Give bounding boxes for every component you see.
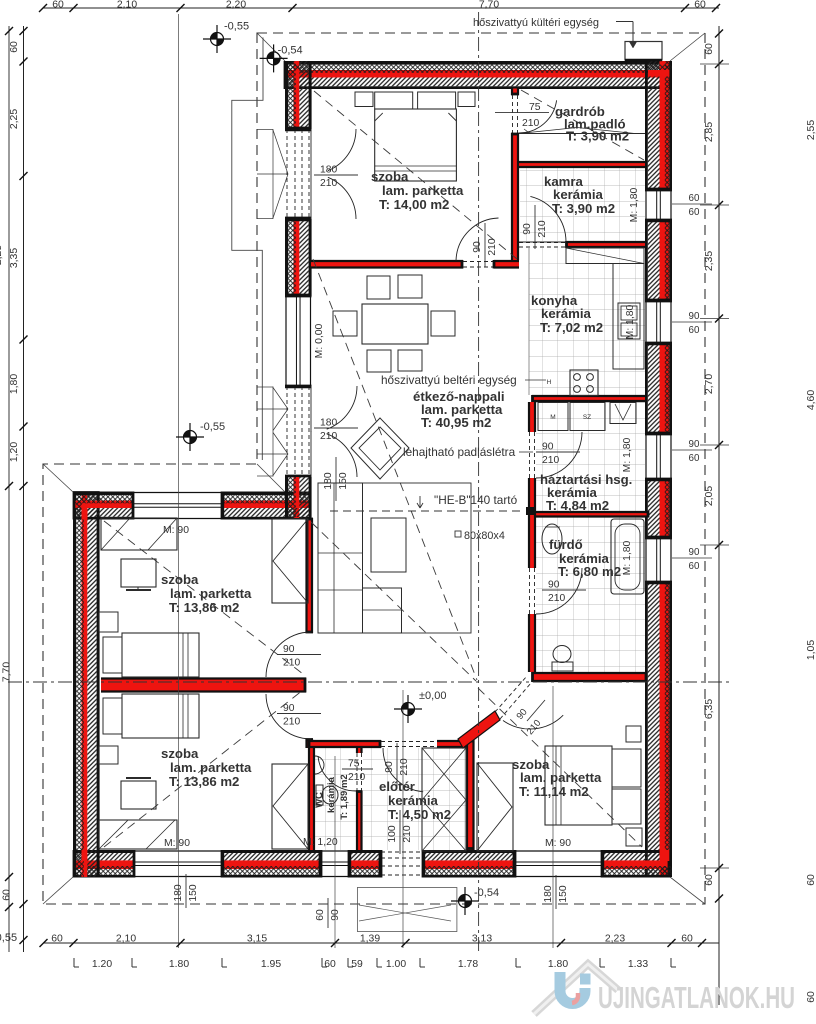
svg-text:210: 210 — [487, 238, 498, 255]
svg-text:kerámia: kerámia — [553, 187, 604, 202]
svg-text:-0,55: -0,55 — [200, 421, 225, 433]
svg-text:1,80: 1,80 — [9, 374, 20, 394]
svg-text:szoba: szoba — [161, 572, 199, 587]
svg-text:fürdő: fürdő — [549, 537, 583, 552]
svg-text:-0,54: -0,54 — [474, 887, 499, 899]
svg-text:lam. parketta: lam. parketta — [382, 183, 464, 198]
svg-text:210: 210 — [283, 717, 300, 728]
svg-text:180: 180 — [543, 885, 554, 902]
svg-text:6,35: 6,35 — [704, 699, 715, 719]
svg-text:60: 60 — [694, 0, 706, 11]
svg-text:60: 60 — [324, 959, 336, 970]
svg-text:4,60: 4,60 — [806, 390, 816, 410]
svg-text:-0,55: -0,55 — [224, 21, 249, 33]
svg-text:1.95: 1.95 — [261, 959, 281, 970]
svg-text:210: 210 — [399, 758, 410, 775]
svg-text:M: 90: M: 90 — [545, 838, 571, 849]
svg-text:kerámia: kerámia — [388, 793, 439, 808]
svg-text:T: 11,14 m2: T: 11,14 m2 — [519, 784, 589, 799]
svg-text:lam. parketta: lam. parketta — [520, 770, 602, 785]
svg-text:UJINGATLANOK.HU: UJINGATLANOK.HU — [598, 980, 795, 1015]
svg-text:1.78: 1.78 — [458, 959, 478, 970]
svg-text:2,10: 2,10 — [117, 0, 137, 11]
svg-text:WC: WC — [314, 792, 325, 808]
svg-text:60: 60 — [9, 41, 20, 53]
svg-text:75: 75 — [529, 102, 541, 113]
svg-text:60: 60 — [806, 874, 816, 886]
svg-text:60: 60 — [681, 934, 693, 945]
svg-text:M: 1,80: M: 1,80 — [625, 304, 636, 339]
svg-text:60: 60 — [689, 193, 700, 204]
svg-text:60: 60 — [689, 561, 700, 572]
svg-text:T: 40,95 m2: T: 40,95 m2 — [421, 415, 491, 430]
svg-text:60: 60 — [52, 0, 64, 11]
svg-text:T: 4,50 m2: T: 4,50 m2 — [388, 807, 451, 822]
svg-text:1.80: 1.80 — [548, 959, 568, 970]
svg-text:210: 210 — [283, 658, 300, 669]
svg-text:2,70: 2,70 — [704, 374, 715, 394]
svg-text:T: 4,84 m2: T: 4,84 m2 — [546, 498, 609, 513]
svg-text:210: 210 — [348, 772, 365, 783]
svg-text:kerámia: kerámia — [541, 306, 592, 321]
svg-text:60: 60 — [689, 453, 700, 464]
svg-text:60: 60 — [51, 934, 63, 945]
svg-text:90: 90 — [283, 703, 295, 714]
svg-text:7,70: 7,70 — [479, 0, 499, 11]
svg-text:180: 180 — [320, 165, 337, 176]
svg-text:T: 13,86 m2: T: 13,86 m2 — [169, 774, 239, 789]
svg-text:2,10: 2,10 — [116, 934, 136, 945]
svg-text:180: 180 — [173, 884, 184, 901]
svg-text:180: 180 — [323, 472, 334, 489]
svg-text:90: 90 — [542, 442, 554, 453]
svg-text:lam. parketta: lam. parketta — [170, 586, 252, 601]
svg-text:lehajtható padláslétra: lehajtható padláslétra — [403, 445, 516, 459]
svg-text:lam. parketta: lam. parketta — [170, 760, 252, 775]
svg-text:210: 210 — [402, 825, 413, 842]
svg-text:3,13: 3,13 — [472, 934, 492, 945]
svg-text:T: 13,86 m2: T: 13,86 m2 — [169, 600, 239, 615]
svg-text:3,35: 3,35 — [9, 248, 20, 268]
svg-text:210: 210 — [522, 118, 540, 129]
svg-text:7,70: 7,70 — [2, 662, 13, 682]
svg-text:90: 90 — [522, 223, 533, 235]
svg-text:90: 90 — [283, 644, 295, 655]
svg-text:hőszivattyú kültéri egység: hőszivattyú kültéri egység — [473, 17, 599, 29]
svg-text:1,05: 1,05 — [806, 640, 816, 660]
svg-text:SZ: SZ — [583, 414, 591, 421]
svg-text:2,25: 2,25 — [0, 245, 4, 265]
svg-text:90: 90 — [472, 241, 483, 253]
svg-text:2,35: 2,35 — [704, 251, 715, 271]
svg-text:90: 90 — [689, 439, 700, 450]
svg-text:M: 1,80: M: 1,80 — [622, 437, 633, 472]
svg-text:T: 7,02 m2: T: 7,02 m2 — [540, 320, 603, 335]
svg-text:60: 60 — [689, 325, 700, 336]
svg-text:100: 100 — [387, 825, 398, 842]
svg-text:-0,54: -0,54 — [278, 45, 303, 57]
svg-text:1.20: 1.20 — [92, 959, 112, 970]
svg-text:60: 60 — [689, 207, 700, 218]
svg-text:60: 60 — [806, 991, 816, 1003]
svg-text:1.80: 1.80 — [169, 959, 189, 970]
svg-text:90: 90 — [689, 311, 700, 322]
svg-text:1.00: 1.00 — [386, 959, 406, 970]
svg-text:M: 90: M: 90 — [163, 525, 189, 536]
svg-text:M: 0,00: M: 0,00 — [314, 323, 325, 358]
svg-text:60: 60 — [2, 889, 13, 901]
svg-text:T: 6,80 m2: T: 6,80 m2 — [558, 564, 621, 579]
svg-text:szoba: szoba — [161, 746, 199, 761]
svg-text:hőszivattyú beltéri egység: hőszivattyú beltéri egység — [381, 373, 517, 387]
svg-text:-0,55: -0,55 — [0, 932, 17, 944]
svg-text:2,20: 2,20 — [226, 0, 246, 11]
svg-text:M: 1,80: M: 1,80 — [629, 187, 640, 222]
svg-text:±0,00: ±0,00 — [419, 690, 446, 702]
svg-text:90: 90 — [384, 761, 395, 773]
svg-text:210: 210 — [320, 178, 337, 189]
svg-text:M: 90: M: 90 — [164, 838, 190, 849]
svg-text:"HE-B"140 tartó: "HE-B"140 tartó — [434, 493, 518, 507]
svg-text:90: 90 — [548, 580, 560, 591]
svg-text:60: 60 — [704, 43, 715, 55]
svg-text:2,23: 2,23 — [605, 934, 625, 945]
svg-text:80x80x4: 80x80x4 — [464, 530, 505, 542]
svg-text:T: 14,00 m2: T: 14,00 m2 — [379, 197, 449, 212]
svg-text:210: 210 — [542, 455, 559, 466]
svg-text:kerámia: kerámia — [326, 776, 337, 813]
svg-text:T: 3,90 m2: T: 3,90 m2 — [552, 201, 615, 216]
svg-text:2,25: 2,25 — [9, 109, 20, 129]
svg-text:210: 210 — [548, 593, 565, 604]
svg-text:75: 75 — [348, 759, 360, 770]
svg-text:150: 150 — [558, 885, 569, 902]
svg-text:M: M — [550, 414, 555, 421]
svg-text:210: 210 — [320, 431, 337, 442]
svg-text:szoba: szoba — [371, 169, 409, 184]
svg-text:150: 150 — [338, 472, 349, 489]
svg-text:90: 90 — [330, 909, 341, 921]
svg-text:M: 1,80: M: 1,80 — [622, 540, 633, 575]
svg-text:60: 60 — [704, 874, 715, 886]
svg-text:1,39: 1,39 — [360, 934, 380, 945]
svg-text:59: 59 — [351, 959, 363, 970]
svg-text:H: H — [547, 379, 552, 386]
svg-text:2,05: 2,05 — [704, 486, 715, 506]
svg-text:2,85: 2,85 — [704, 122, 715, 142]
svg-text:M: 1,20: M: 1,20 — [303, 837, 338, 848]
svg-text:60: 60 — [315, 909, 326, 921]
svg-text:1,20: 1,20 — [9, 442, 20, 462]
svg-text:2,55: 2,55 — [806, 120, 816, 140]
svg-text:T: 3,90 m2: T: 3,90 m2 — [566, 129, 629, 144]
svg-text:3,15: 3,15 — [247, 934, 267, 945]
svg-text:90: 90 — [689, 547, 700, 558]
svg-text:180: 180 — [320, 418, 337, 429]
svg-text:210: 210 — [537, 220, 548, 237]
svg-text:150: 150 — [188, 884, 199, 901]
svg-text:1.33: 1.33 — [628, 959, 648, 970]
